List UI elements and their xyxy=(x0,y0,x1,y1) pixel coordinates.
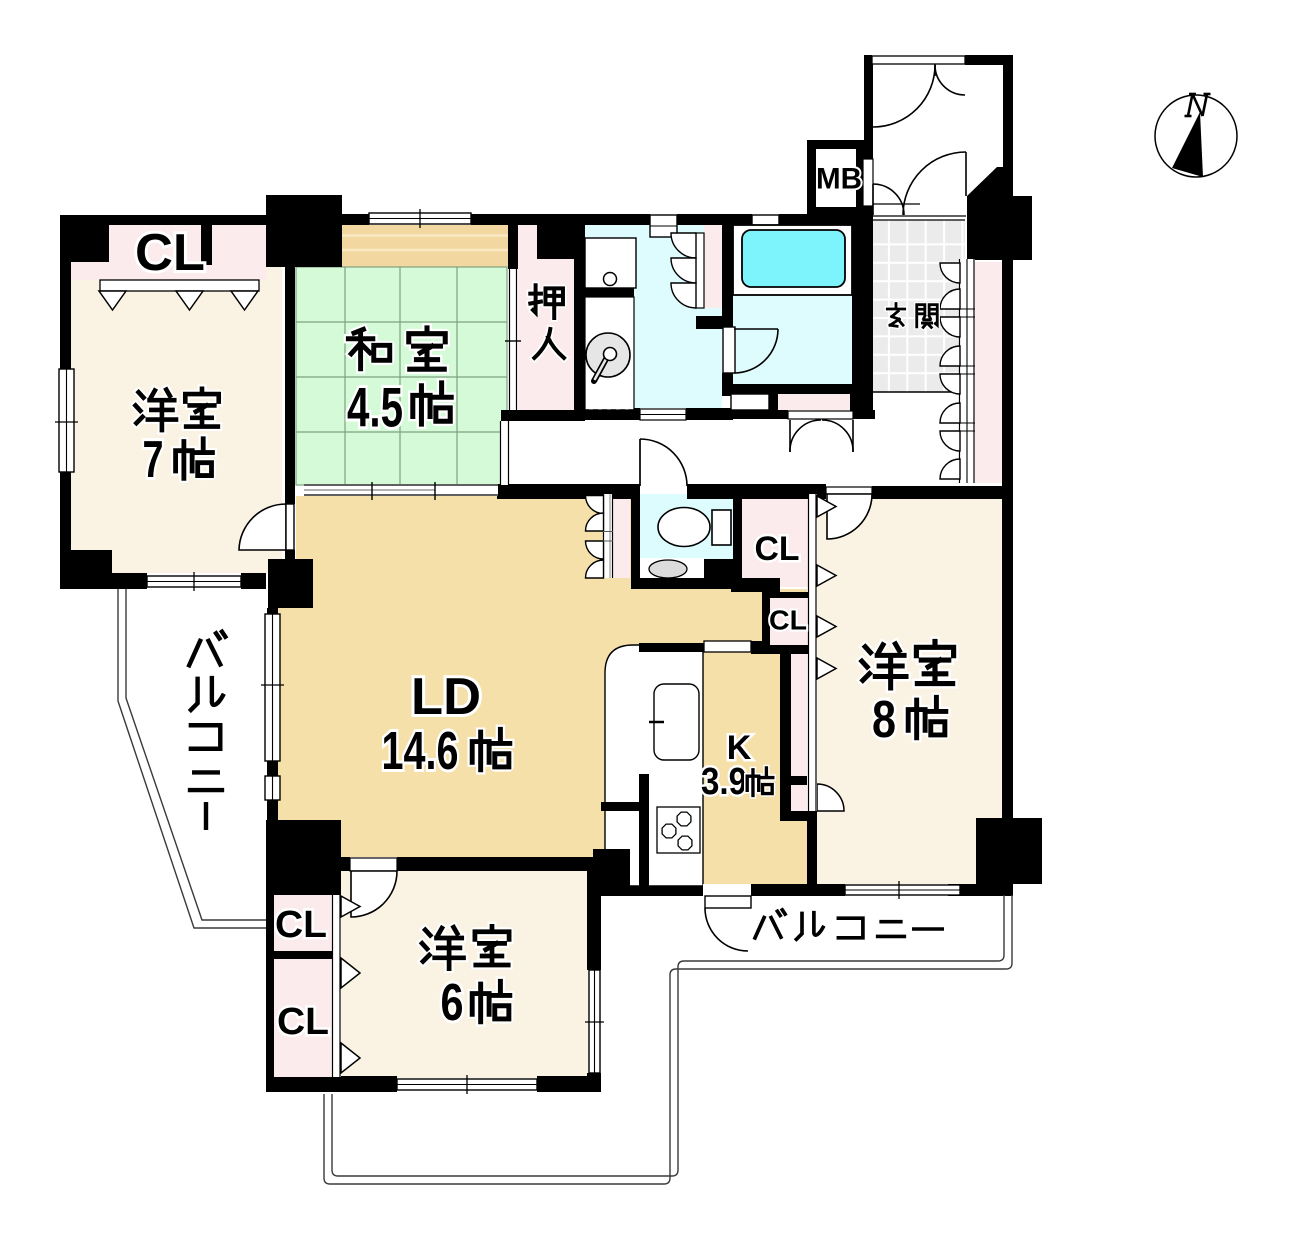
svg-text:MB: MB xyxy=(816,163,862,196)
svg-text:4.5: 4.5 xyxy=(347,376,403,439)
svg-text:3.9: 3.9 xyxy=(701,761,747,803)
svg-text:LD: LD xyxy=(411,668,481,726)
svg-text:CL: CL xyxy=(277,1001,329,1043)
svg-text:14.6: 14.6 xyxy=(382,721,459,781)
svg-text:6: 6 xyxy=(441,974,464,1032)
svg-text:CL: CL xyxy=(769,605,807,636)
svg-text:CL: CL xyxy=(755,530,800,568)
svg-text:8: 8 xyxy=(872,691,896,749)
svg-text:CL: CL xyxy=(135,224,205,282)
svg-text:7: 7 xyxy=(143,431,164,489)
svg-text:CL: CL xyxy=(275,904,327,946)
